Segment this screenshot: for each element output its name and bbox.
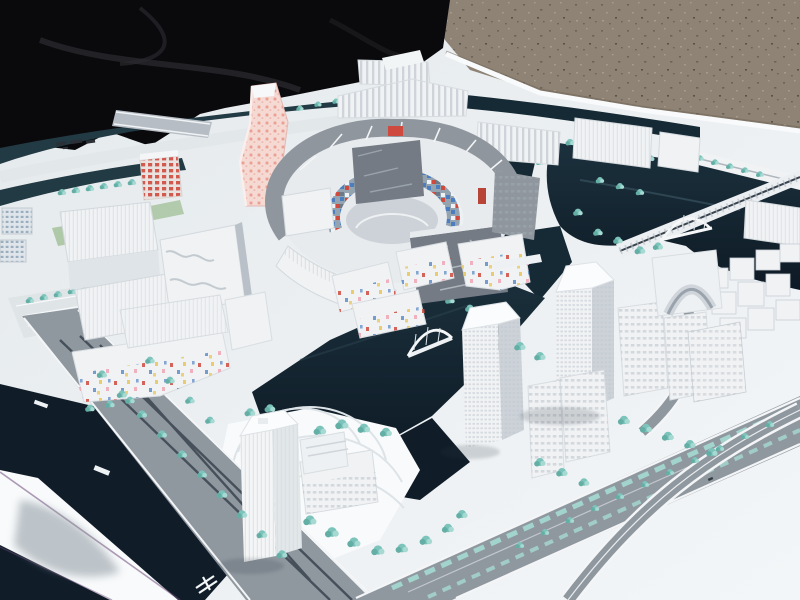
arch-building <box>652 250 722 316</box>
model-scene-svg <box>0 0 800 600</box>
red-checker-building <box>140 150 182 200</box>
red-billboard <box>388 126 403 136</box>
red-sign <box>478 188 486 204</box>
mid-office-tower <box>462 302 524 448</box>
photo-architectural-model <box>0 0 800 600</box>
